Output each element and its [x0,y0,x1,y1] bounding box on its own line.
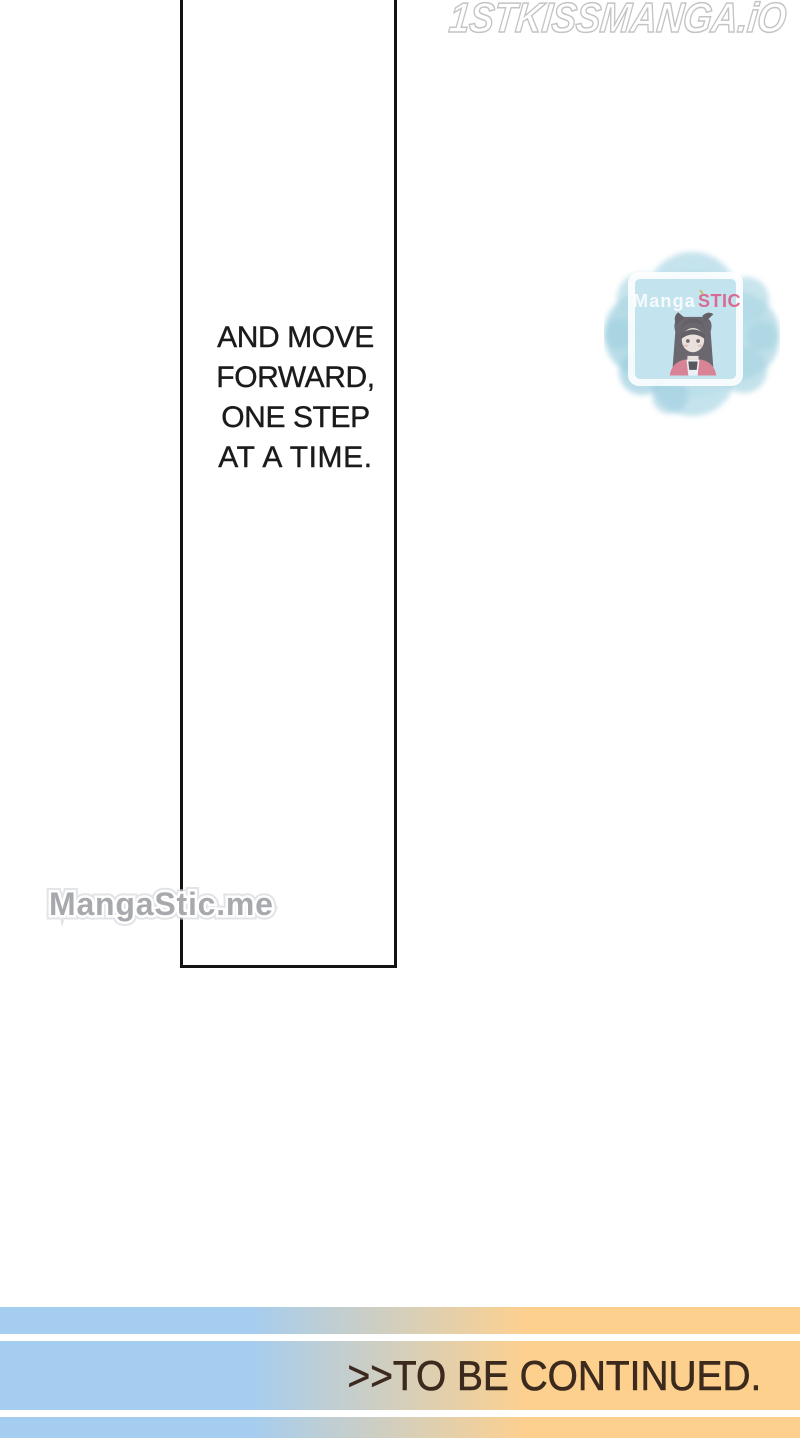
svg-text:Manga: Manga [633,291,696,311]
svg-text:STIC: STIC [698,291,741,311]
svg-text:MangaStic.me: MangaStic.me [49,886,274,922]
